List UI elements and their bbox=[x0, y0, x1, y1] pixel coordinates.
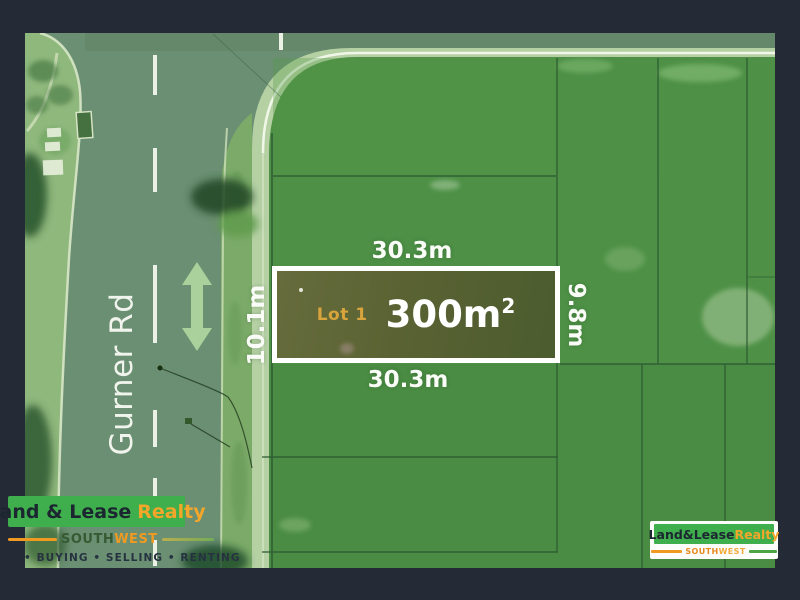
listing-image: Lot 1 300m2 30.3m 30.3m 10.1m 9.8m Gurne… bbox=[0, 0, 800, 600]
power-pole bbox=[158, 366, 163, 371]
lot-marker-dot bbox=[299, 288, 303, 292]
brand-lockup-right: Land&Lease Realty SOUTHWEST bbox=[650, 521, 778, 559]
road-name-label: Gurner Rd bbox=[104, 254, 140, 494]
two-way-traffic-arrow-icon bbox=[182, 262, 212, 351]
brand-name-dark: Land & Lease bbox=[0, 501, 131, 523]
brand-banner: Land & Lease Realty bbox=[8, 496, 185, 527]
divider-line-green bbox=[749, 550, 777, 553]
brand-tagline: • BUYING • SELLING • RENTING bbox=[24, 552, 198, 564]
brand-region-row: SOUTHWEST bbox=[8, 532, 189, 547]
dimension-left: 10.1m bbox=[244, 265, 270, 385]
lot-area-superscript: 2 bbox=[501, 294, 515, 318]
divider-line-orange bbox=[651, 550, 682, 553]
brand-name-dark: Land&Lease bbox=[649, 527, 735, 542]
divider-line-orange bbox=[8, 538, 57, 541]
dimension-bottom: 30.3m bbox=[348, 367, 468, 393]
lot-ground-mark bbox=[340, 343, 354, 354]
brand-region-label: SOUTHWEST bbox=[685, 547, 745, 556]
dimension-right: 9.8m bbox=[563, 255, 589, 375]
brand-region-row: SOUTHWEST bbox=[654, 547, 774, 556]
lot-boundary: Lot 1 300m2 bbox=[272, 266, 560, 363]
brand-name-accent: Realty bbox=[735, 527, 780, 542]
brand-region-label: SOUTHWEST bbox=[61, 532, 158, 547]
brand-name-accent: Realty bbox=[137, 501, 205, 523]
dimension-top: 30.3m bbox=[352, 238, 472, 264]
lot-number-label: Lot 1 bbox=[317, 305, 368, 325]
brand-lockup-left: Land & Lease Realty SOUTHWEST • BUYING •… bbox=[8, 496, 198, 564]
aerial-photo: Lot 1 300m2 30.3m 30.3m 10.1m 9.8m Gurne… bbox=[25, 33, 775, 568]
divider-line-green bbox=[162, 538, 214, 541]
parked-truck bbox=[76, 112, 93, 139]
street-light bbox=[185, 418, 192, 424]
brand-banner-small: Land&Lease Realty bbox=[654, 524, 774, 544]
lot-area-label: 300m2 bbox=[386, 296, 516, 333]
